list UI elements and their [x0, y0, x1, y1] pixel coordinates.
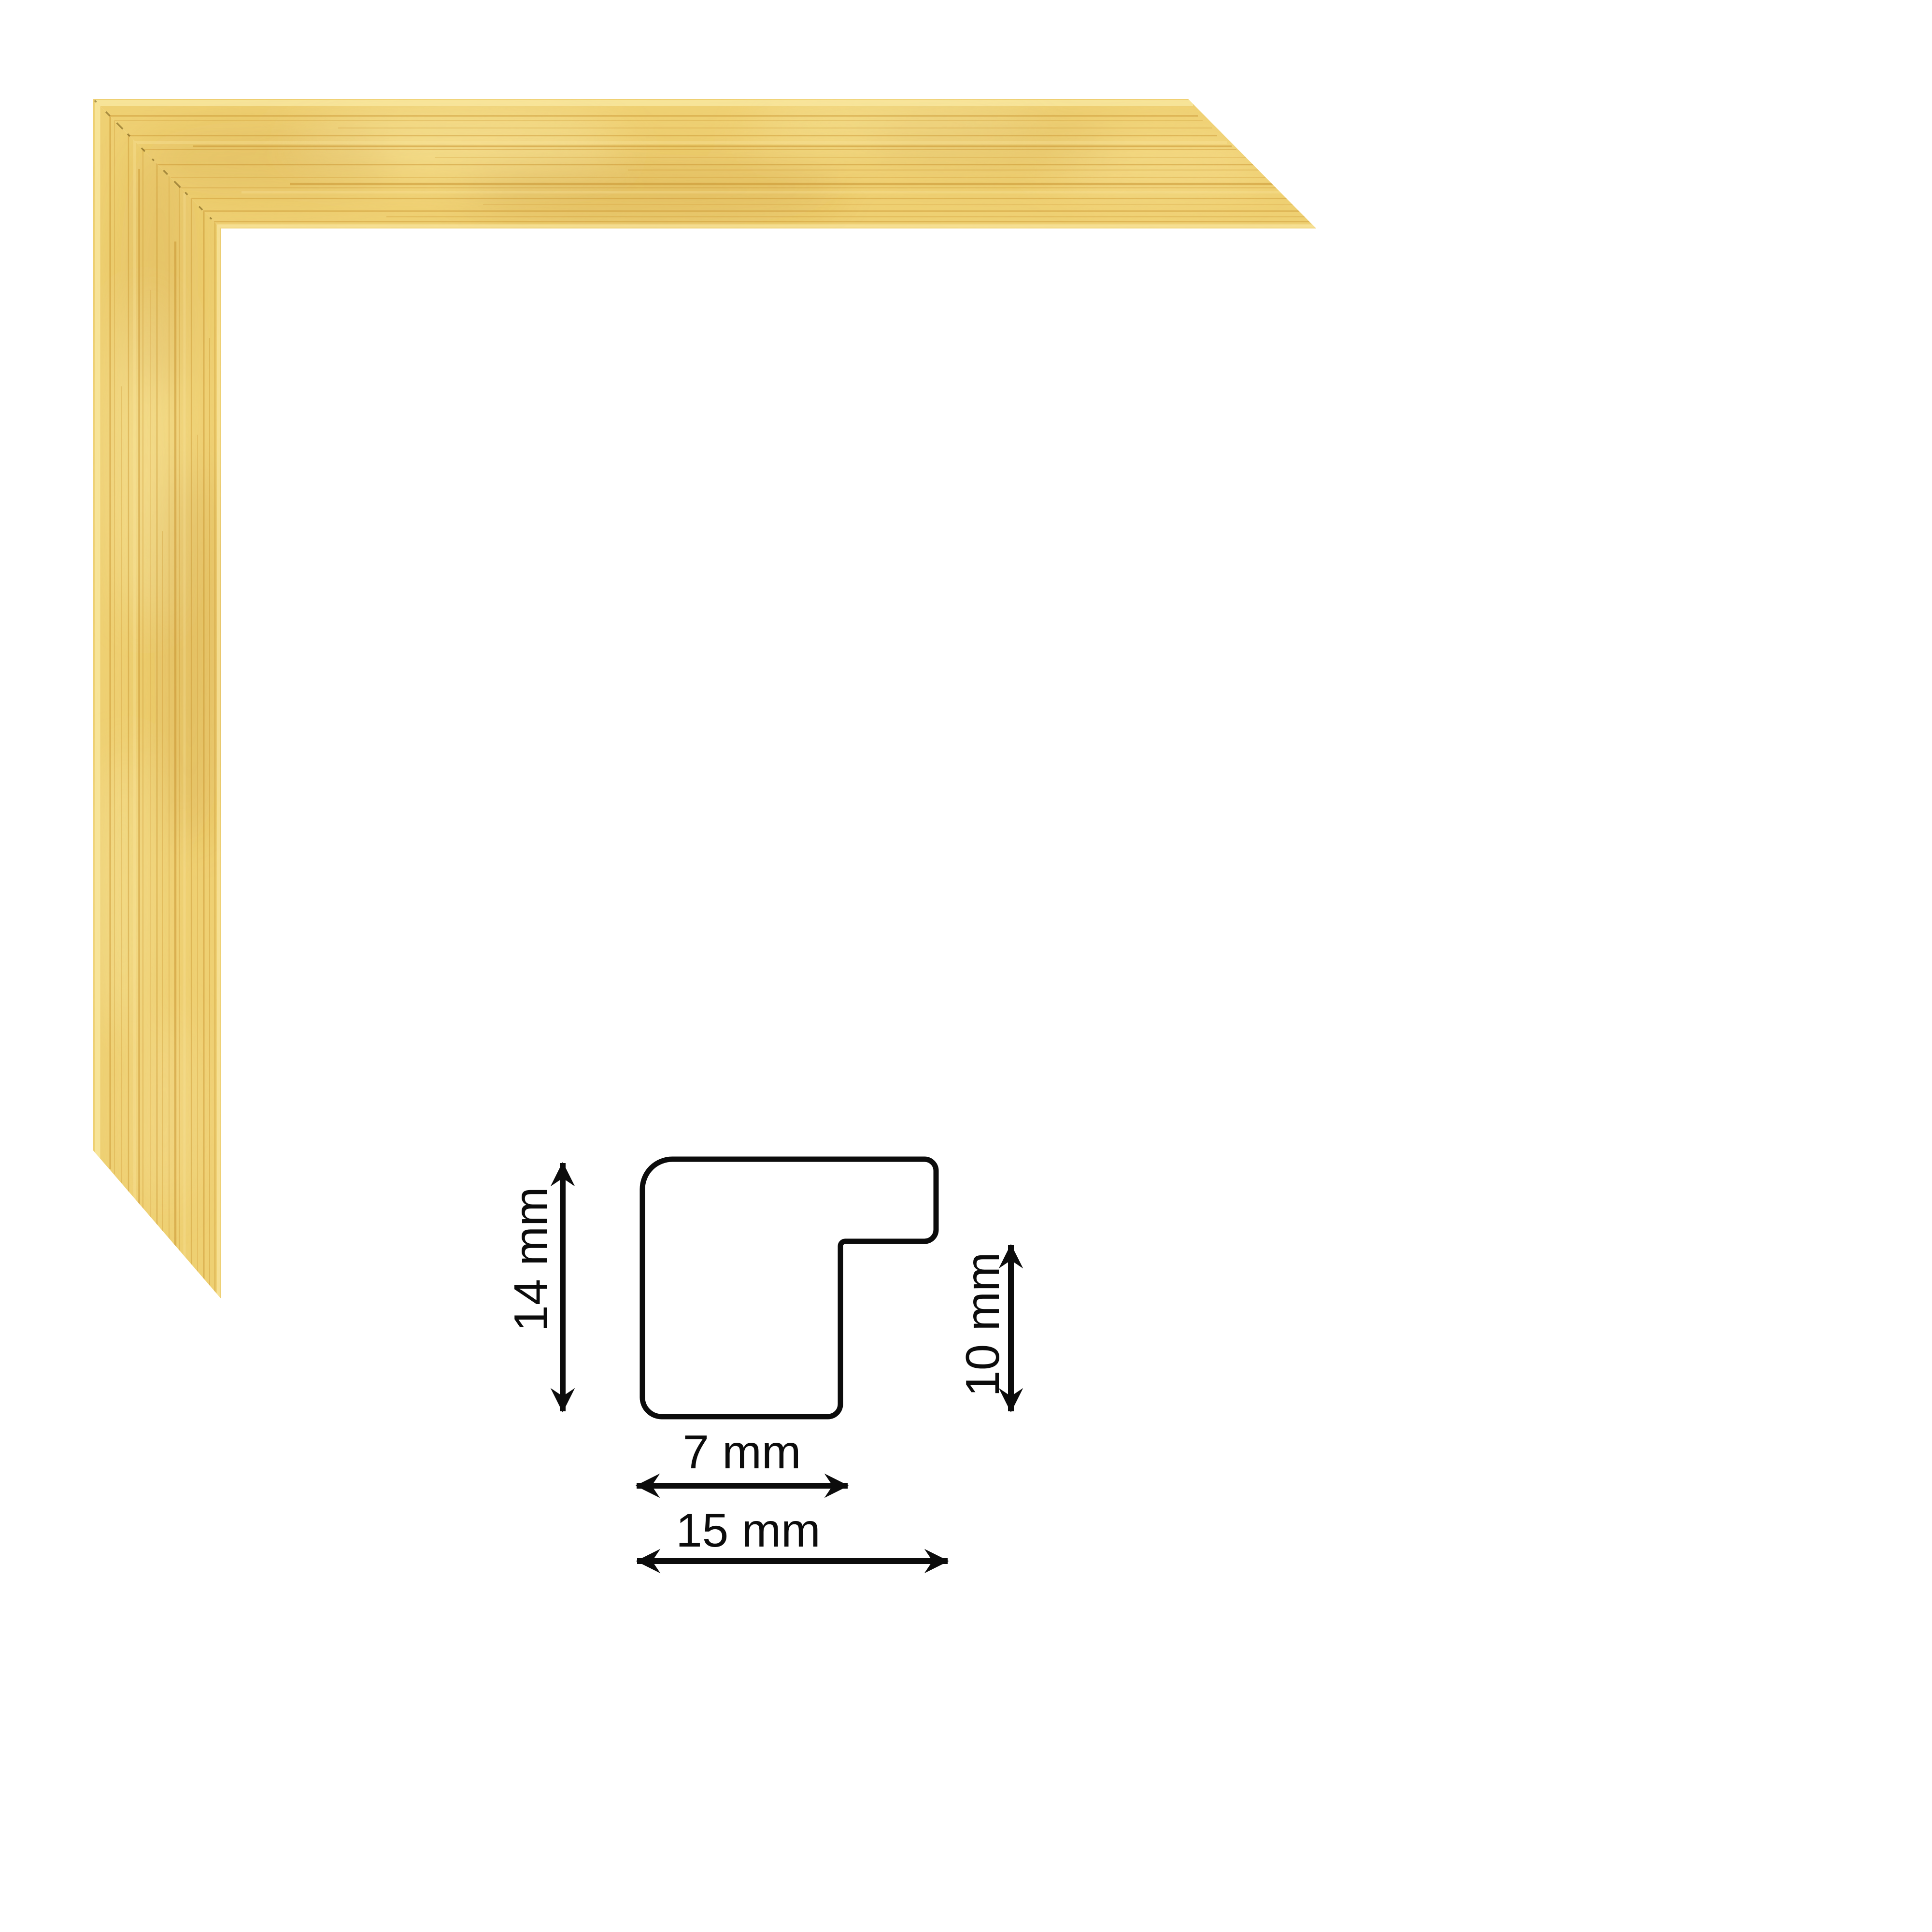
dimension-10mm: 10 mm: [956, 1245, 1011, 1411]
dimension-label-15mm: 15 mm: [676, 1504, 821, 1557]
dimension-15mm: 15 mm: [637, 1504, 948, 1561]
profile-outline: [642, 1159, 936, 1417]
frame-top-rail: [93, 94, 1317, 228]
dimension-label-10mm: 10 mm: [956, 1252, 1009, 1397]
profile-dimension-diagram: 14 mm 10 mm 7 mm 15 mm: [483, 1111, 1087, 1642]
dimension-7mm: 7 mm: [637, 1425, 848, 1486]
dimension-label-7mm: 7 mm: [683, 1425, 801, 1478]
frame-left-rail: [93, 99, 227, 1298]
frame-top-rail-grain: [93, 94, 1317, 228]
dimension-14mm: 14 mm: [504, 1163, 563, 1411]
frame-left-rail-grain: [93, 99, 227, 1298]
dimension-label-14mm: 14 mm: [504, 1187, 557, 1332]
page-canvas: 14 mm 10 mm 7 mm 15 mm: [0, 0, 1932, 1932]
